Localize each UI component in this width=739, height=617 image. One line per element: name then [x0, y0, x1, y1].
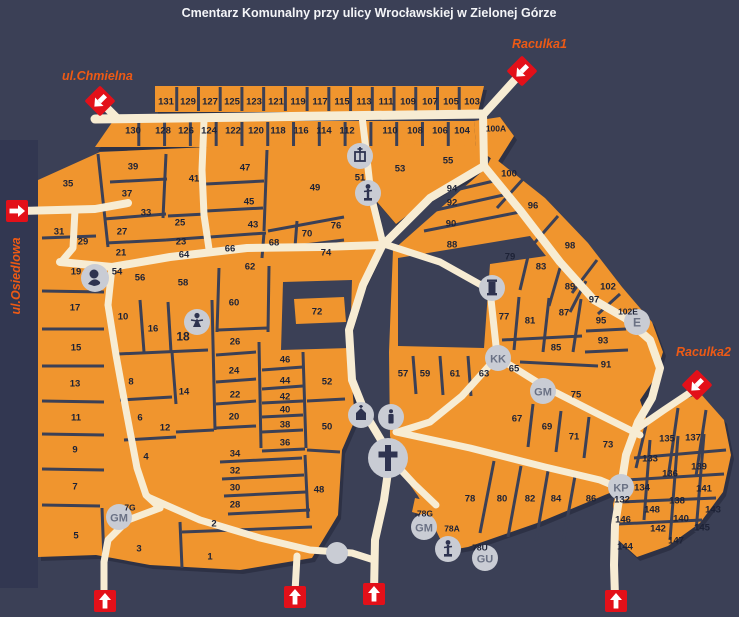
section-label-117: 117	[312, 97, 327, 108]
section-label-102E: 102E	[618, 307, 638, 317]
svg-text:GM: GM	[110, 513, 128, 525]
section-label-63: 63	[479, 369, 490, 380]
section-label-126: 126	[178, 126, 194, 137]
street-label-raculka2: Raculka2	[676, 345, 731, 359]
section-label-3: 3	[136, 544, 141, 555]
divider-line	[268, 266, 269, 332]
section-label-36: 36	[280, 438, 291, 449]
section-label-143: 143	[705, 505, 721, 516]
gate-monument-icon	[347, 143, 373, 169]
section-label-34: 34	[230, 449, 241, 460]
page-title: Cmentarz Komunalny przy ulicy Wrocławski…	[182, 6, 557, 20]
section-label-53: 53	[395, 164, 406, 175]
section-label-133: 133	[642, 454, 658, 465]
section-label-146: 146	[615, 515, 631, 526]
section-label-27: 27	[117, 227, 128, 238]
section-label-47: 47	[240, 163, 251, 174]
section-label-16: 16	[148, 324, 159, 335]
section-label-87: 87	[559, 308, 570, 319]
section-label-93: 93	[598, 336, 609, 347]
section-label-96: 96	[528, 201, 539, 212]
section-label-45: 45	[244, 197, 255, 208]
section-label-77: 77	[499, 312, 510, 323]
section-label-100: 100	[501, 169, 517, 180]
section-label-130: 130	[125, 126, 141, 137]
section-label-72: 72	[312, 307, 323, 318]
section-label-37: 37	[122, 189, 133, 200]
svg-text:GU: GU	[477, 554, 494, 566]
section-label-108: 108	[407, 126, 423, 137]
section-label-39: 39	[128, 162, 139, 173]
section-label-83: 83	[536, 262, 547, 273]
section-label-139: 139	[691, 462, 707, 473]
section-label-140: 140	[673, 514, 689, 525]
section-label-78G: 78G	[417, 509, 433, 519]
divider-line	[168, 214, 206, 216]
section-label-6: 6	[137, 413, 142, 424]
section-label-25: 25	[175, 218, 186, 229]
section-label-104: 104	[454, 126, 471, 137]
divider-line	[180, 522, 182, 568]
section-label-132: 132	[614, 495, 630, 506]
section-label-56: 56	[135, 273, 146, 284]
section-label-41: 41	[189, 174, 200, 185]
section-label-136: 136	[662, 469, 678, 480]
section-label-138: 138	[669, 496, 685, 507]
divider-line	[586, 329, 626, 331]
svg-text:GM: GM	[534, 387, 552, 399]
section-label-4: 4	[143, 452, 149, 463]
section-label-110: 110	[382, 126, 397, 137]
divider-line	[307, 450, 340, 452]
section-label-15: 15	[71, 343, 82, 354]
divider-line	[176, 430, 214, 432]
section-label-103: 103	[464, 97, 480, 108]
section-label-58: 58	[178, 278, 189, 289]
section-label-38: 38	[280, 420, 291, 431]
section-label-112: 112	[339, 126, 354, 137]
section-label-147: 147	[668, 536, 684, 547]
street-label-raculka1: Raculka1	[512, 37, 567, 51]
section-label-148: 148	[644, 505, 660, 516]
section-label-144: 144	[617, 542, 634, 553]
section-label-13: 13	[70, 379, 81, 390]
section-label-74: 74	[321, 248, 332, 259]
cemetery-map-page: KKGMEKPGMGMGU 13112912712512312111911711…	[0, 0, 739, 617]
section-label-81: 81	[525, 316, 536, 327]
section-label-21: 21	[116, 248, 127, 259]
section-label-124: 124	[201, 126, 218, 137]
section-label-89: 89	[565, 282, 576, 293]
entrance-arrow	[284, 586, 306, 608]
section-label-20: 20	[229, 412, 240, 423]
section-label-118: 118	[270, 126, 285, 137]
section-label-48: 48	[314, 485, 325, 496]
divider-line	[259, 342, 261, 448]
cemetery-path	[483, 114, 484, 166]
street-label-osiedlowa: ul.Osiedlowa	[9, 237, 23, 314]
section-label-22: 22	[230, 390, 241, 401]
column-monument-icon	[479, 275, 505, 301]
section-label-91: 91	[601, 360, 612, 371]
section-label-80: 80	[497, 494, 508, 505]
roundabout-dot-icon	[326, 542, 348, 564]
section-label-64: 64	[179, 250, 190, 261]
section-label-127: 127	[202, 97, 218, 108]
section-label-35: 35	[63, 179, 74, 190]
section-label-84: 84	[551, 494, 562, 505]
section-label-59: 59	[420, 369, 431, 380]
section-label-19: 19	[71, 267, 82, 278]
section-label-115: 115	[334, 97, 350, 108]
section-label-7G: 7G	[124, 503, 136, 513]
svg-text:KK: KK	[490, 354, 506, 366]
section-label-42: 42	[280, 392, 291, 403]
section-label-78U: 78U	[472, 543, 488, 553]
section-label-51: 51	[355, 173, 366, 184]
section-label-88: 88	[447, 240, 458, 251]
section-label-17: 17	[70, 303, 81, 314]
section-label-44: 44	[280, 376, 291, 387]
entrance-arrow	[363, 583, 385, 605]
section-label-66: 66	[225, 244, 236, 255]
section-label-71: 71	[569, 432, 580, 443]
section-label-61: 61	[450, 369, 461, 380]
svg-text:E: E	[633, 316, 641, 330]
section-label-52: 52	[322, 377, 333, 388]
divider-line	[42, 505, 100, 506]
section-label-111: 111	[379, 97, 395, 108]
section-label-69: 69	[542, 422, 553, 433]
section-label-82: 82	[525, 494, 536, 505]
section-label-23: 23	[176, 237, 187, 248]
divider-line	[217, 268, 219, 332]
section-label-125: 125	[224, 97, 241, 108]
section-label-50: 50	[322, 422, 333, 433]
section-label-116: 116	[293, 126, 308, 137]
badge-gm-icon: GM	[530, 378, 556, 404]
section-label-142: 142	[650, 524, 666, 535]
section-label-9: 9	[72, 445, 77, 456]
divider-line	[42, 434, 104, 435]
section-label-40: 40	[280, 405, 291, 416]
divider-line	[262, 449, 305, 451]
section-label-141: 141	[696, 484, 713, 495]
section-label-145: 145	[694, 523, 711, 534]
section-label-134: 134	[634, 483, 651, 494]
section-label-78A: 78A	[444, 524, 460, 534]
section-label-5: 5	[73, 531, 79, 542]
section-label-1: 1	[207, 552, 213, 563]
section-label-12: 12	[160, 423, 171, 434]
section-label-109: 109	[400, 97, 416, 108]
section-label-68: 68	[269, 238, 280, 249]
divider-line	[218, 328, 268, 330]
section-label-65: 65	[509, 364, 520, 375]
divider-line	[42, 401, 104, 402]
cemetery-map: KKGMEKPGMGMGU 13112912712512312111911711…	[0, 0, 739, 617]
section-label-75: 75	[571, 390, 582, 401]
section-label-107: 107	[422, 97, 438, 108]
section-label-86: 86	[586, 494, 597, 505]
section-label-73: 73	[603, 440, 614, 451]
svg-text:GM: GM	[415, 523, 433, 535]
section-label-57: 57	[398, 369, 409, 380]
section-label-49: 49	[310, 183, 321, 194]
section-label-137: 137	[685, 433, 701, 444]
section-label-67: 67	[512, 414, 523, 425]
section-label-90: 90	[446, 219, 457, 230]
section-label-98: 98	[565, 241, 576, 252]
section-label-92: 92	[447, 198, 458, 209]
section-label-62: 62	[245, 262, 256, 273]
entrance-arrow	[94, 590, 116, 612]
section-label-8: 8	[128, 377, 133, 388]
section-label-114: 114	[316, 126, 332, 137]
section-label-54: 54	[112, 267, 123, 278]
section-label-60: 60	[229, 298, 240, 309]
section-label-10: 10	[118, 312, 129, 323]
divider-line	[585, 350, 628, 352]
section-label-120: 120	[248, 126, 264, 137]
section-label-121: 121	[268, 97, 285, 108]
section-label-28: 28	[230, 500, 241, 511]
statue-icon	[355, 180, 381, 206]
section-label-29: 29	[78, 237, 89, 248]
section-label-102: 102	[600, 282, 616, 293]
section-label-95: 95	[596, 316, 607, 327]
divider-line	[295, 221, 297, 247]
candle-icon	[378, 404, 404, 430]
section-label-79: 79	[505, 252, 516, 263]
section-label-18: 18	[176, 330, 190, 344]
section-label-105: 105	[443, 97, 460, 108]
divider-line	[42, 469, 104, 470]
section-label-97: 97	[589, 295, 600, 306]
section-label-70: 70	[302, 229, 313, 240]
statue-icon	[435, 536, 461, 562]
section-label-119: 119	[290, 97, 305, 108]
section-label-11: 11	[71, 413, 82, 424]
section-label-94: 94	[447, 184, 458, 195]
divider-line	[307, 399, 345, 401]
section-label-85: 85	[551, 343, 562, 354]
section-label-30: 30	[230, 483, 241, 494]
section-label-33: 33	[141, 208, 152, 219]
section-label-129: 129	[180, 97, 196, 108]
section-label-55: 55	[443, 156, 454, 167]
street-label-chmielna: ul.Chmielna	[62, 69, 133, 83]
section-label-135: 135	[659, 434, 676, 445]
bust-monument-icon	[81, 264, 109, 292]
section-label-14: 14	[179, 387, 190, 398]
section-label-122: 122	[225, 126, 241, 137]
svg-text:KP: KP	[613, 483, 628, 495]
main-cross-icon	[368, 438, 408, 478]
section-label-2: 2	[211, 519, 216, 530]
section-label-131: 131	[158, 97, 175, 108]
chapel-icon	[348, 402, 374, 428]
section-label-128: 128	[155, 126, 171, 137]
section-label-26: 26	[230, 337, 241, 348]
section-label-32: 32	[230, 466, 241, 477]
cemetery-path	[95, 114, 483, 119]
section-label-43: 43	[248, 220, 259, 231]
entrance-arrow	[605, 590, 627, 612]
section-label-100A: 100A	[486, 124, 506, 134]
section-label-123: 123	[246, 97, 262, 108]
section-label-106: 106	[432, 126, 448, 137]
badge-kk-icon: KK	[485, 345, 511, 371]
section-label-78: 78	[465, 494, 476, 505]
section-label-7: 7	[72, 482, 77, 493]
section-label-113: 113	[356, 97, 371, 108]
section-label-76: 76	[331, 221, 342, 232]
section-label-46: 46	[280, 355, 291, 366]
entrance-arrow	[6, 200, 28, 222]
section-label-31: 31	[54, 227, 65, 238]
section-label-24: 24	[229, 366, 240, 377]
divider-line	[216, 426, 256, 428]
